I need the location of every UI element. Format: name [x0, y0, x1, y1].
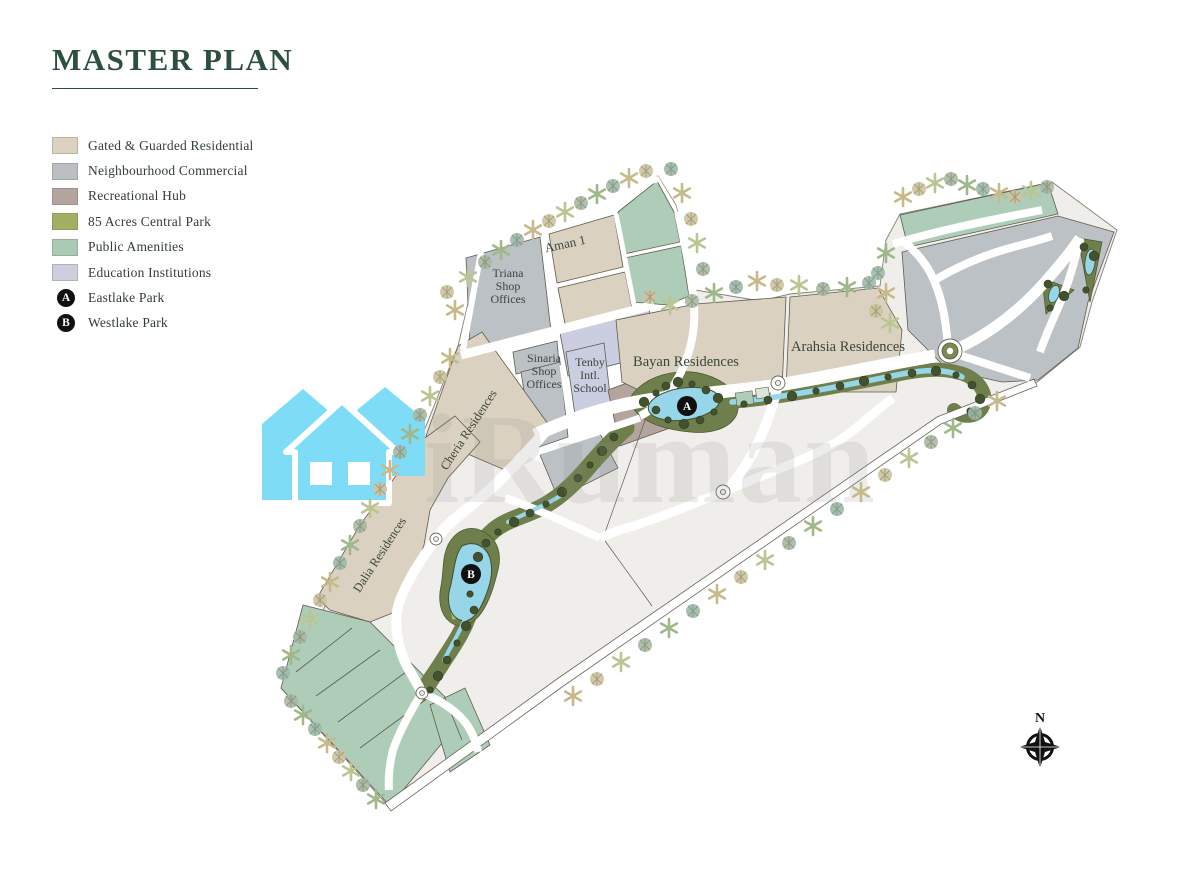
round-tree-icon — [308, 722, 322, 736]
legend-label: Education Institutions — [88, 265, 211, 281]
park-tree-icon — [482, 539, 490, 547]
palm-tree-icon — [791, 276, 807, 294]
legend-item-education-institutions: Education Institutions — [52, 260, 253, 285]
palm-tree-icon — [661, 619, 677, 637]
round-tree-icon — [782, 536, 796, 550]
round-tree-icon — [313, 593, 327, 607]
round-tree-icon — [413, 408, 427, 422]
park-tree-icon — [461, 621, 471, 631]
round-tree-icon — [664, 162, 678, 176]
round-tree-icon — [276, 666, 290, 680]
palm-tree-icon — [447, 301, 463, 319]
round-tree-icon — [574, 196, 588, 210]
round-tree-icon — [639, 164, 653, 178]
round-tree-icon — [830, 502, 844, 516]
round-tree-icon — [333, 556, 347, 570]
legend-label: 85 Acres Central Park — [88, 214, 211, 230]
eastlake-park-marker: A — [677, 396, 697, 416]
legend-marker-b: B — [57, 314, 75, 332]
round-tree-icon — [968, 406, 982, 420]
round-tree-icon — [606, 179, 620, 193]
palm-tree-icon — [674, 184, 690, 202]
legend-marker-a: A — [57, 289, 75, 307]
palm-tree-icon — [709, 585, 725, 603]
park-tree-icon — [473, 552, 483, 562]
round-tree-icon — [393, 445, 407, 459]
legend-item-westlake-park: BWestlake Park — [52, 311, 253, 336]
round-tree-icon — [373, 482, 387, 496]
park-tree-icon — [1044, 280, 1052, 288]
round-tree-icon — [871, 266, 885, 280]
legend-label: Public Amenities — [88, 239, 184, 255]
round-tree-icon — [293, 630, 307, 644]
park-tree-icon — [931, 366, 941, 376]
round-tree-icon — [684, 212, 698, 226]
park-tree-icon — [454, 640, 460, 646]
park-tree-icon — [470, 606, 478, 614]
compass-north-label: N — [1035, 711, 1045, 726]
park-tree-icon — [1047, 305, 1053, 311]
round-tree-icon — [696, 262, 710, 276]
header: MASTER PLAN — [52, 42, 293, 89]
park-tree-icon — [467, 591, 473, 597]
round-tree-icon — [1040, 180, 1054, 194]
palm-tree-icon — [901, 449, 917, 467]
park-tree-icon — [953, 372, 959, 378]
round-tree-icon — [542, 214, 556, 228]
legend-item-recreational-hub: Recreational Hub — [52, 184, 253, 209]
legend-label: Neighbourhood Commercial — [88, 163, 248, 179]
round-tree-icon — [878, 468, 892, 482]
round-tree-icon — [353, 519, 367, 533]
park-tree-icon — [1083, 287, 1089, 293]
round-tree-icon — [924, 435, 938, 449]
legend-swatch — [52, 137, 78, 154]
legend-label: Recreational Hub — [88, 188, 186, 204]
round-tree-icon — [734, 570, 748, 584]
legend-item-neighbourhood-commercial: Neighbourhood Commercial — [52, 158, 253, 183]
palm-tree-icon — [895, 188, 911, 206]
round-tree-icon — [510, 233, 524, 247]
round-tree-icon — [638, 638, 652, 652]
legend-swatch — [52, 264, 78, 281]
legend-item-gated-guarded-residential: Gated & Guarded Residential — [52, 133, 253, 158]
round-tree-icon — [1008, 190, 1022, 204]
round-tree-icon — [976, 182, 990, 196]
round-tree-icon — [440, 285, 454, 299]
legend-item-eastlake-park: AEastlake Park — [52, 285, 253, 310]
svg-text:B: B — [467, 569, 475, 581]
westlake-park-marker: B — [461, 564, 481, 584]
legend-swatch — [52, 239, 78, 256]
palm-tree-icon — [927, 174, 943, 192]
legend-label: Eastlake Park — [88, 290, 164, 306]
park-tree-icon — [433, 671, 443, 681]
park-tree-icon — [1059, 291, 1069, 301]
legend-swatch — [52, 213, 78, 230]
round-tree-icon — [770, 278, 784, 292]
park-tree-icon — [427, 687, 433, 693]
park-tree-icon — [673, 377, 683, 387]
park-tree-icon — [689, 381, 695, 387]
round-tree-icon — [912, 182, 926, 196]
map-label-bayan-residences: Bayan Residences — [633, 354, 739, 370]
legend-item-85-acres-central-park: 85 Acres Central Park — [52, 209, 253, 234]
legend-label: Westlake Park — [88, 315, 168, 331]
palm-tree-icon — [959, 176, 975, 194]
palm-tree-icon — [749, 272, 765, 290]
palm-tree-icon — [565, 687, 581, 705]
round-tree-icon — [332, 750, 346, 764]
park-tree-icon — [908, 369, 916, 377]
palm-tree-icon — [689, 234, 705, 252]
park-tree-icon — [1089, 251, 1099, 261]
palm-tree-icon — [613, 653, 629, 671]
round-tree-icon — [816, 282, 830, 296]
park-tree-icon — [443, 656, 451, 664]
round-tree-icon — [590, 672, 604, 686]
round-tree-icon — [685, 294, 699, 308]
round-tree-icon — [944, 172, 958, 186]
legend: Gated & Guarded ResidentialNeighbourhood… — [52, 133, 253, 336]
round-tree-icon — [729, 280, 743, 294]
palm-tree-icon — [757, 551, 773, 569]
compass: N — [1019, 711, 1061, 768]
round-tree-icon — [284, 694, 298, 708]
round-tree-icon — [643, 290, 657, 304]
watermark-text: iRuman — [424, 388, 877, 530]
map-label-arahsia-residences: Arahsia Residences — [791, 339, 905, 355]
legend-item-public-amenities: Public Amenities — [52, 235, 253, 260]
master-plan-page: iRuman Aman 1TrianaShopOfficesSinariaSho… — [0, 0, 1200, 893]
round-tree-icon — [686, 604, 700, 618]
page-title: MASTER PLAN — [52, 42, 293, 78]
legend-swatch — [52, 163, 78, 180]
legend-swatch — [52, 188, 78, 205]
round-tree-icon — [356, 778, 370, 792]
round-tree-icon — [478, 255, 492, 269]
park-tree-icon — [859, 376, 869, 386]
park-tree-icon — [968, 381, 976, 389]
legend-label: Gated & Guarded Residential — [88, 138, 253, 154]
round-tree-icon — [869, 304, 883, 318]
park-tree-icon — [975, 394, 985, 404]
round-tree-icon — [433, 370, 447, 384]
park-tree-icon — [885, 374, 891, 380]
svg-text:A: A — [683, 401, 692, 413]
park-tree-icon — [1080, 243, 1088, 251]
title-underline — [52, 88, 258, 89]
